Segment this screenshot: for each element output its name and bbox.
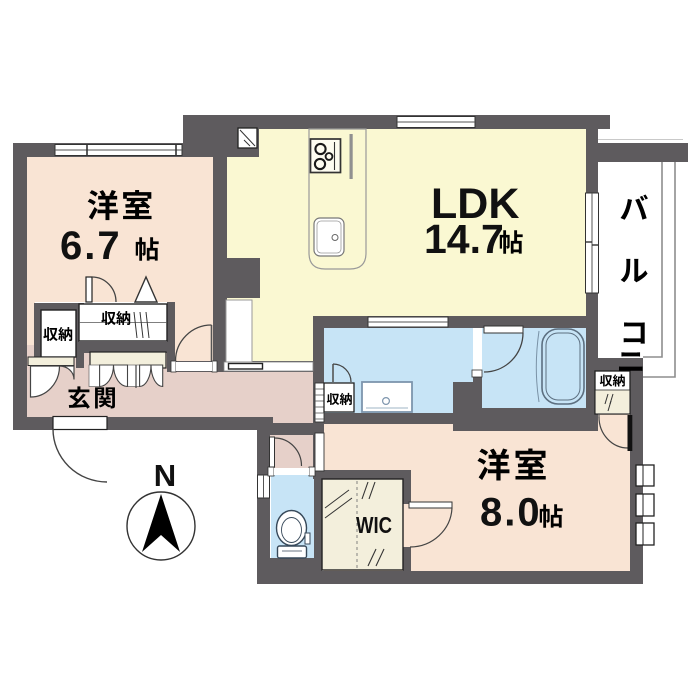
- svg-text:WIC: WIC: [356, 512, 392, 538]
- svg-text:14.7: 14.7: [424, 216, 504, 262]
- svg-text:8.0: 8.0: [480, 491, 542, 535]
- svg-text:6.7: 6.7: [60, 224, 122, 268]
- svg-text:N: N: [154, 458, 176, 493]
